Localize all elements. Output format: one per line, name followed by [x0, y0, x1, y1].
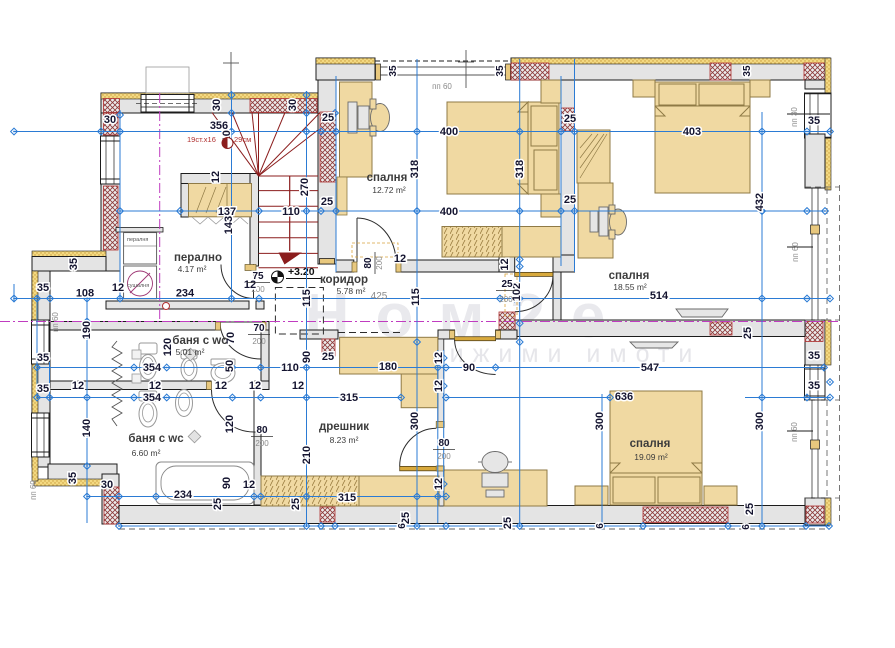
svg-text:12: 12	[243, 479, 255, 491]
svg-text:пп 60: пп 60	[51, 312, 60, 332]
svg-text:315: 315	[340, 392, 358, 404]
svg-text:12: 12	[112, 282, 124, 294]
svg-text:115: 115	[410, 288, 422, 306]
svg-text:25: 25	[321, 196, 333, 208]
svg-text:25: 25	[290, 498, 302, 510]
svg-text:120: 120	[224, 415, 236, 433]
svg-text:25: 25	[742, 327, 754, 339]
svg-text:25: 25	[502, 517, 514, 529]
svg-text:140: 140	[81, 419, 93, 437]
svg-text:200: 200	[255, 439, 269, 448]
svg-text:547: 547	[641, 362, 659, 374]
svg-text:12: 12	[433, 478, 445, 490]
svg-text:коридор: коридор	[320, 274, 368, 286]
svg-text:19.09 m²: 19.09 m²	[634, 452, 668, 462]
svg-text:90: 90	[463, 362, 475, 374]
svg-text:25: 25	[744, 503, 756, 515]
svg-text:300: 300	[594, 412, 606, 430]
svg-text:110: 110	[282, 206, 300, 218]
svg-text:300: 300	[754, 412, 766, 430]
svg-text:спалня: спалня	[367, 172, 408, 184]
svg-text:210: 210	[301, 446, 313, 464]
svg-text:35: 35	[67, 472, 79, 484]
svg-text:25: 25	[322, 112, 334, 124]
svg-text:102: 102	[511, 283, 523, 301]
svg-text:636: 636	[615, 391, 633, 403]
svg-text:сушалня: сушалня	[127, 283, 149, 289]
svg-text:6: 6	[397, 523, 408, 529]
svg-text:30: 30	[211, 99, 223, 111]
svg-text:108: 108	[76, 288, 94, 300]
svg-text:12: 12	[433, 380, 445, 392]
svg-text:80: 80	[438, 438, 450, 449]
svg-text:пп 60: пп 60	[432, 82, 452, 91]
svg-text:дрешник: дрешник	[319, 421, 369, 433]
svg-text:35: 35	[37, 352, 49, 364]
svg-text:баня с wc: баня с wc	[172, 335, 228, 347]
svg-text:12.72 m²: 12.72 m²	[372, 185, 406, 195]
svg-text:35: 35	[808, 380, 820, 392]
svg-text:403: 403	[683, 126, 701, 138]
svg-text:35: 35	[37, 282, 49, 294]
svg-text:318: 318	[514, 160, 526, 178]
svg-text:234: 234	[176, 288, 195, 300]
svg-text:+3.20: +3.20	[288, 266, 315, 278]
svg-text:12: 12	[210, 171, 222, 183]
svg-text:12: 12	[394, 253, 406, 265]
svg-text:30: 30	[101, 479, 113, 491]
svg-text:4.17 m²: 4.17 m²	[178, 264, 207, 274]
svg-text:перално: перално	[174, 252, 222, 264]
svg-text:5.78 m²: 5.78 m²	[337, 286, 366, 296]
svg-text:пп 60: пп 60	[791, 242, 800, 262]
svg-text:115: 115	[301, 289, 313, 307]
svg-text:пп 30: пп 30	[790, 107, 799, 127]
svg-text:315: 315	[338, 492, 356, 504]
svg-text:180: 180	[379, 361, 397, 373]
svg-text:514: 514	[650, 290, 669, 302]
svg-text:25: 25	[400, 512, 412, 524]
svg-text:30: 30	[287, 99, 299, 111]
svg-text:25: 25	[564, 113, 576, 125]
svg-text:25: 25	[501, 279, 513, 290]
svg-text:спалня: спалня	[609, 270, 650, 282]
svg-text:200: 200	[499, 295, 513, 304]
svg-text:200: 200	[375, 256, 384, 270]
svg-text:6: 6	[595, 523, 606, 529]
svg-text:12: 12	[249, 380, 261, 392]
svg-text:318: 318	[409, 160, 421, 178]
svg-text:70: 70	[253, 323, 265, 334]
svg-text:35: 35	[388, 65, 399, 77]
svg-text:80: 80	[256, 425, 268, 436]
svg-text:баня с wc: баня с wc	[128, 433, 184, 445]
svg-text:35: 35	[37, 383, 49, 395]
svg-text:12: 12	[499, 258, 511, 270]
svg-text:300: 300	[409, 412, 421, 430]
svg-text:35: 35	[68, 258, 80, 270]
svg-text:8.23 m²: 8.23 m²	[330, 435, 359, 445]
svg-text:18.55 m²: 18.55 m²	[613, 282, 647, 292]
svg-text:50: 50	[224, 360, 236, 372]
svg-text:12: 12	[433, 352, 445, 364]
svg-text:35: 35	[495, 65, 506, 77]
svg-text:110: 110	[281, 362, 299, 374]
svg-text:432: 432	[754, 193, 766, 211]
svg-text:400: 400	[440, 126, 458, 138]
svg-text:190: 190	[81, 321, 93, 339]
svg-text:234: 234	[174, 489, 193, 501]
svg-text:пп 60: пп 60	[29, 480, 38, 500]
svg-text:425: 425	[371, 291, 388, 302]
svg-text:143: 143	[223, 216, 235, 234]
svg-text:25: 25	[322, 351, 334, 363]
svg-text:200: 200	[252, 337, 266, 346]
svg-text:25: 25	[564, 194, 576, 206]
svg-text:90: 90	[301, 351, 313, 363]
svg-text:90: 90	[221, 477, 233, 489]
svg-text:354: 354	[143, 392, 162, 404]
svg-text:200: 200	[437, 452, 451, 461]
svg-text:270: 270	[299, 178, 311, 196]
svg-text:30: 30	[104, 114, 116, 126]
svg-text:12: 12	[149, 380, 161, 392]
svg-text:19ст.х16: 19ст.х16	[187, 135, 216, 144]
svg-text:25: 25	[212, 498, 224, 510]
svg-text:6.60 m²: 6.60 m²	[132, 448, 161, 458]
svg-text:35: 35	[742, 65, 753, 77]
svg-text:12: 12	[215, 380, 227, 392]
svg-text:12: 12	[292, 380, 304, 392]
svg-text:354: 354	[143, 362, 162, 374]
svg-text:пп 60: пп 60	[790, 422, 799, 442]
svg-text:35: 35	[808, 115, 820, 127]
svg-text:5.01 m²: 5.01 m²	[176, 347, 205, 357]
svg-text:80: 80	[363, 257, 374, 269]
svg-text:35: 35	[808, 350, 820, 362]
svg-text:12: 12	[244, 279, 256, 291]
svg-text:29см: 29см	[234, 135, 251, 144]
svg-text:12: 12	[72, 380, 84, 392]
svg-text:400: 400	[440, 206, 458, 218]
svg-text:спалня: спалня	[630, 438, 671, 450]
svg-text:пералня: пералня	[127, 237, 148, 243]
svg-text:6: 6	[741, 524, 752, 530]
